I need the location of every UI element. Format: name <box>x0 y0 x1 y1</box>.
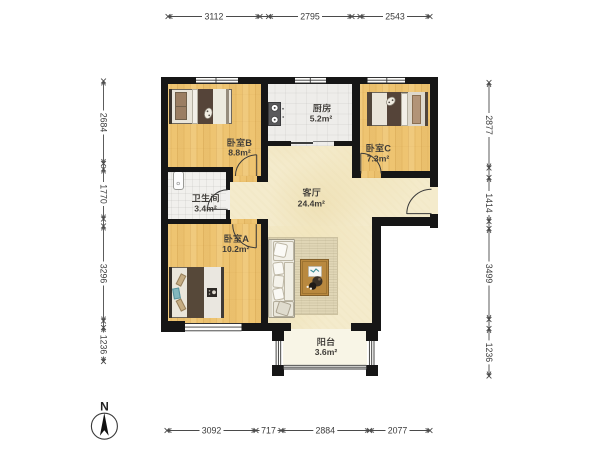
svg-text:7.3m²: 7.3m² <box>367 153 390 163</box>
svg-text:3112: 3112 <box>205 12 224 22</box>
svg-text:C: C <box>384 144 391 154</box>
svg-text:3.6m²: 3.6m² <box>315 347 338 357</box>
svg-text:8.8m²: 8.8m² <box>228 148 251 158</box>
svg-text:3092: 3092 <box>202 426 222 436</box>
svg-text:1770: 1770 <box>98 184 108 204</box>
svg-text:2077: 2077 <box>388 426 408 436</box>
svg-text:N: N <box>100 400 109 414</box>
svg-text:3296: 3296 <box>98 264 108 284</box>
svg-text:2795: 2795 <box>300 12 320 22</box>
svg-text:2877: 2877 <box>484 115 494 135</box>
svg-text:1236: 1236 <box>484 343 494 363</box>
svg-text:10.2m²: 10.2m² <box>222 244 249 254</box>
svg-text:717: 717 <box>261 426 276 436</box>
svg-text:24.4m²: 24.4m² <box>298 199 325 209</box>
svg-text:2684: 2684 <box>98 113 108 133</box>
svg-text:2543: 2543 <box>385 12 405 22</box>
svg-text:3.4m²: 3.4m² <box>194 204 217 214</box>
svg-text:1414: 1414 <box>484 193 494 213</box>
svg-text:A: A <box>242 234 249 244</box>
svg-text:5.2m²: 5.2m² <box>310 114 333 124</box>
svg-text:3499: 3499 <box>484 264 494 284</box>
svg-text:B: B <box>245 138 252 148</box>
svg-text:1236: 1236 <box>98 335 108 355</box>
svg-text:2884: 2884 <box>316 426 336 436</box>
